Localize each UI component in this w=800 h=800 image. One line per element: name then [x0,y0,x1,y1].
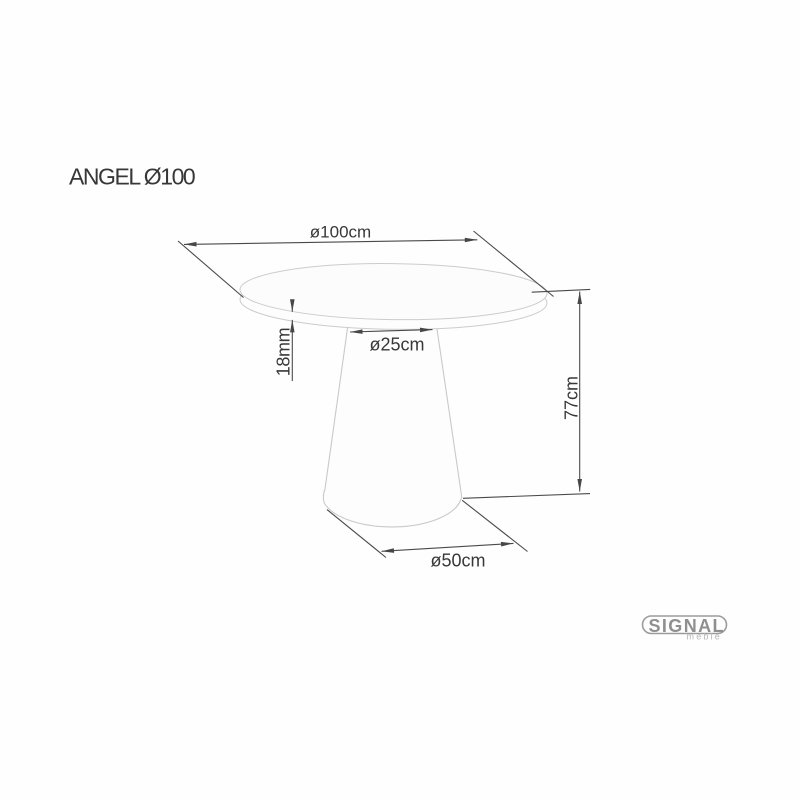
svg-text:ø50cm: ø50cm [430,551,485,571]
svg-text:18mm: 18mm [274,328,294,376]
svg-text:meble: meble [687,632,723,642]
svg-text:77cm: 77cm [562,376,582,420]
svg-text:ANGEL Ø100: ANGEL Ø100 [69,164,195,190]
svg-text:ø25cm: ø25cm [369,335,424,355]
svg-text:ø100cm: ø100cm [310,223,371,242]
